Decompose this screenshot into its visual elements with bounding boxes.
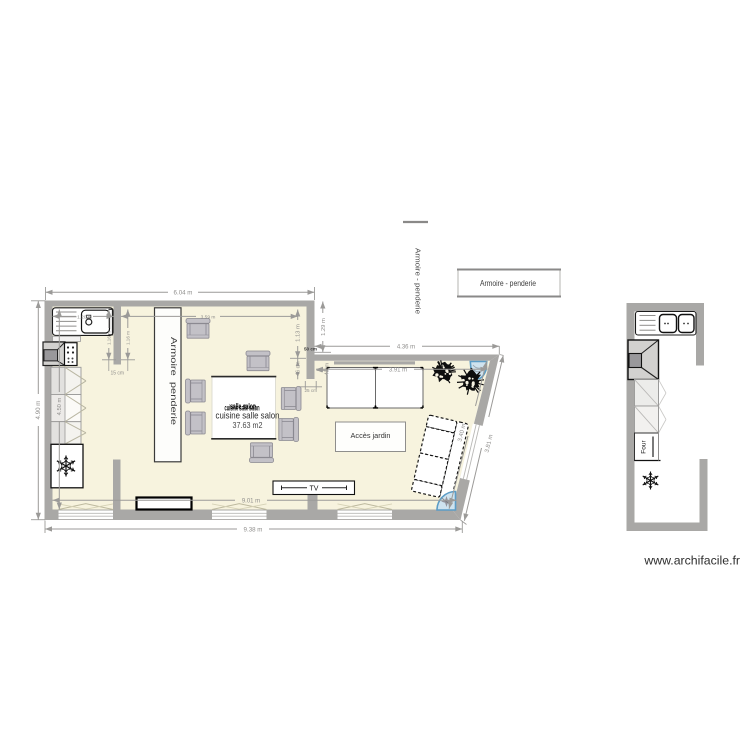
svg-text:1.20 m: 1.20 m	[77, 314, 92, 320]
svg-text:3.81 m: 3.81 m	[485, 434, 495, 453]
svg-text:Four: Four	[641, 439, 648, 453]
svg-text:9.38 m: 9.38 m	[244, 526, 263, 533]
svg-text:www.archifacile.fr: www.archifacile.fr	[643, 554, 740, 568]
svg-text:15 cm: 15 cm	[110, 371, 124, 377]
svg-text:1.13 m: 1.13 m	[296, 324, 302, 342]
svg-text:46 cm: 46 cm	[296, 361, 302, 375]
svg-text:6.04 m: 6.04 m	[174, 290, 193, 297]
svg-text:Armoire - penderie: Armoire - penderie	[480, 279, 536, 288]
svg-text:1.16 m: 1.16 m	[107, 331, 112, 345]
svg-text:Armoire - penderie: Armoire - penderie	[414, 248, 421, 314]
svg-text:50 cm: 50 cm	[304, 347, 317, 352]
svg-text:1.29 m: 1.29 m	[321, 318, 327, 336]
svg-text:TV: TV	[310, 485, 319, 492]
svg-text:25 cm: 25 cm	[304, 388, 317, 393]
svg-text:3.59 m: 3.59 m	[201, 314, 216, 320]
svg-text:3.91 m: 3.91 m	[389, 368, 407, 374]
svg-text:Armoire penderie: Armoire penderie	[169, 337, 178, 426]
svg-text:4.90 m: 4.90 m	[35, 401, 42, 420]
svg-text:40cm: 40cm	[324, 363, 330, 375]
svg-text:37.63 m2: 37.63 m2	[233, 420, 263, 430]
svg-text:Accès jardin: Accès jardin	[351, 433, 391, 440]
svg-text:9.01 m: 9.01 m	[242, 498, 260, 504]
svg-text:4.36 m: 4.36 m	[397, 345, 415, 351]
svg-text:1.16 m: 1.16 m	[126, 331, 131, 345]
svg-text:4.50 m: 4.50 m	[57, 397, 63, 415]
svg-text:salle salon: salle salon	[230, 402, 256, 411]
